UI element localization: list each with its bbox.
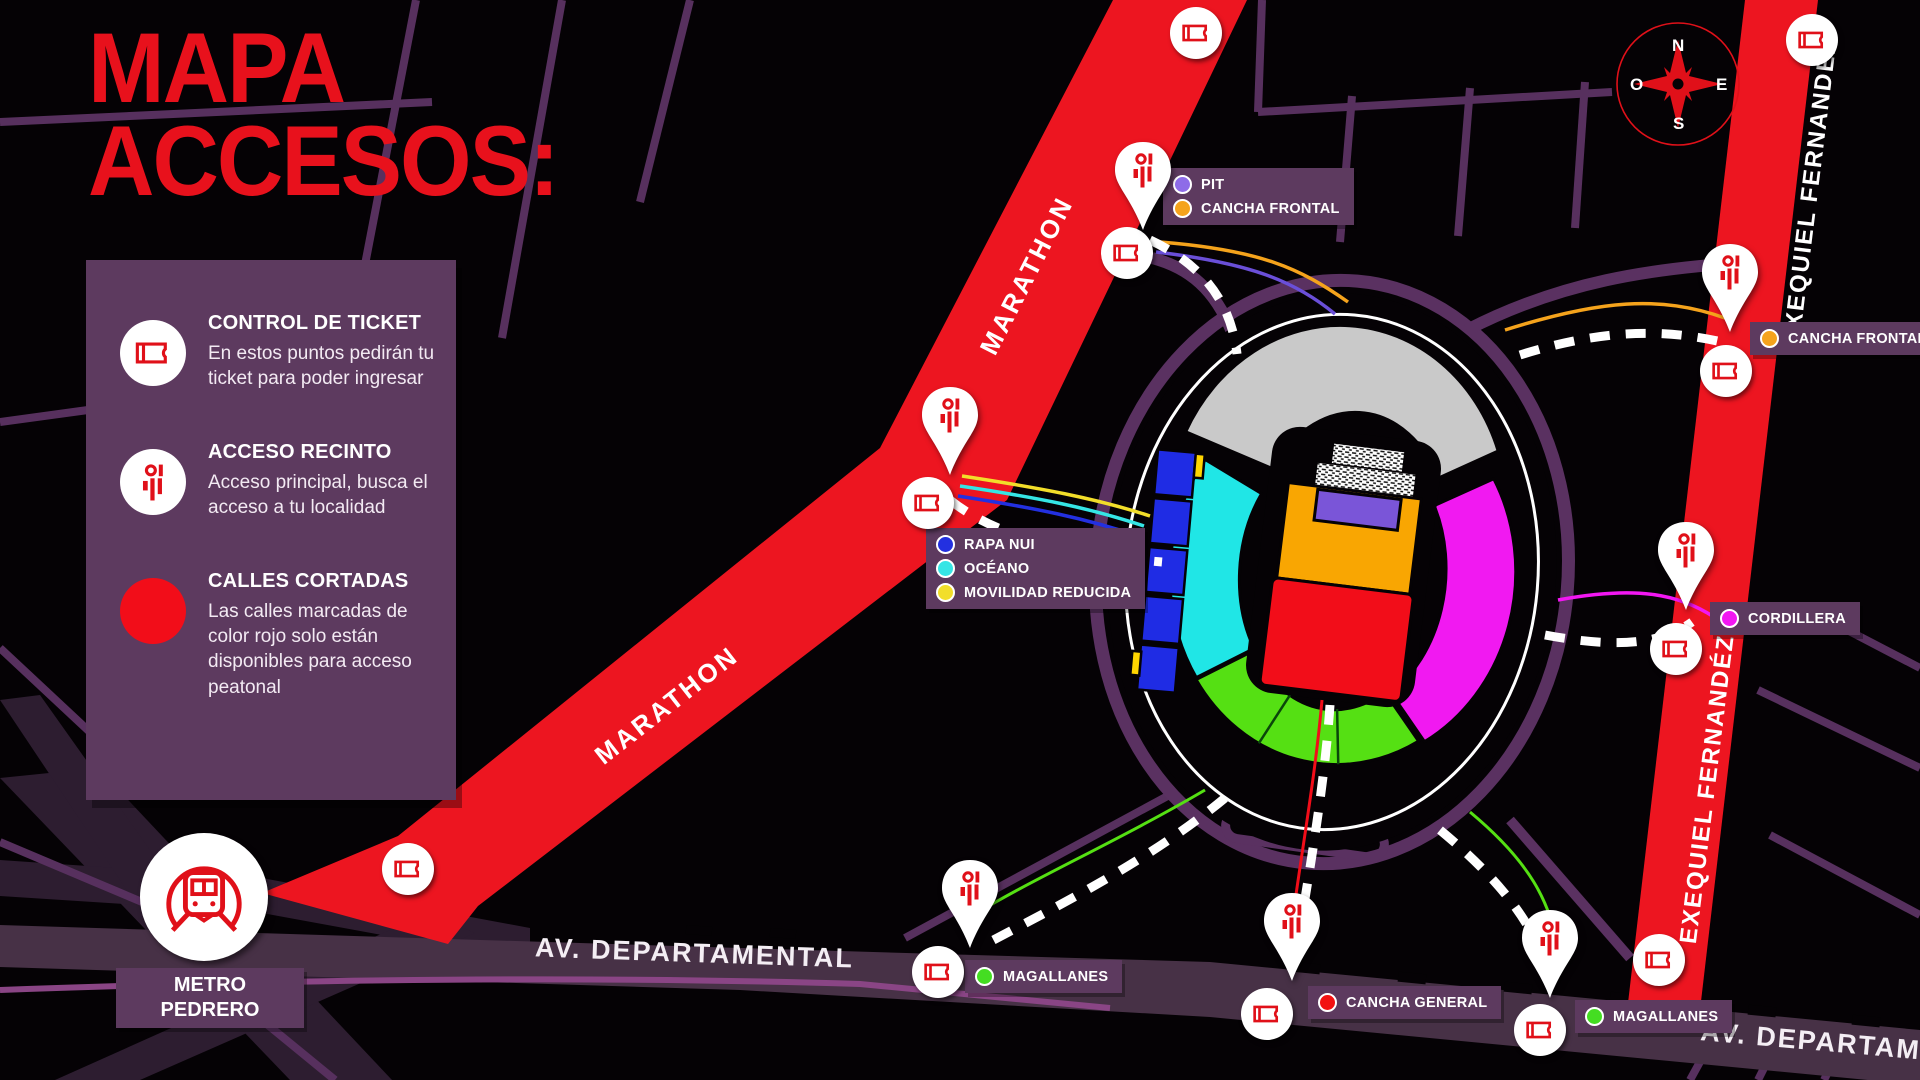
legend-item-control-ticket: CONTROL DE TICKET En estos puntos pedirá… [120, 312, 456, 391]
magallanes-dot [1585, 1007, 1604, 1026]
cordillera-dot [1720, 609, 1739, 628]
cancha-frontal-dot [1760, 329, 1779, 348]
legend-body: Las calles marcadas de color rojo solo e… [208, 599, 440, 699]
access-pin-marker [918, 385, 982, 477]
access-map: MAPA ACCESOS: CONTROL DE TICKET En estos… [0, 0, 1920, 1080]
zone-cancha-general [1260, 577, 1414, 702]
ticket-control-marker [1633, 934, 1685, 986]
access-pin-marker [1111, 140, 1175, 232]
ticket-control-marker [1700, 345, 1752, 397]
compass-n: N [1672, 36, 1684, 56]
closed-street-icon [120, 578, 186, 644]
access-pin-marker [1260, 891, 1324, 983]
ticket-icon [120, 320, 186, 386]
oceano-dot [936, 559, 955, 578]
movilidad-dot [936, 583, 955, 602]
ticket-control-marker [912, 946, 964, 998]
legend-item-calles-cortadas: CALLES CORTADAS Las calles marcadas de c… [120, 570, 456, 699]
zone-label-magallanes-right: MAGALLANES [1575, 1000, 1732, 1033]
legend-title: CALLES CORTADAS [208, 570, 440, 593]
access-pin-marker [1518, 908, 1582, 1000]
zone-label-cancha-frontal: CANCHA FRONTAL [1750, 322, 1920, 355]
field [1243, 424, 1444, 711]
pit-dot [1173, 175, 1192, 194]
ticket-control-marker [1514, 1004, 1566, 1056]
legend-title: ACCESO RECINTO [208, 441, 440, 464]
cancha-frontal-dot [1173, 199, 1192, 218]
ticket-control-marker [1101, 227, 1153, 279]
zone-label-cancha-general: CANCHA GENERAL [1308, 986, 1501, 1019]
compass-s: S [1673, 114, 1684, 134]
access-pin-marker [938, 858, 1002, 950]
zone-movilidad [1194, 454, 1205, 479]
zone-label-magallanes-left: MAGALLANES [965, 960, 1122, 993]
legend-title: CONTROL DE TICKET [208, 312, 440, 335]
access-pin-marker [1698, 242, 1762, 334]
zone-label-cordillera: CORDILLERA [1710, 602, 1860, 635]
legend-body: En estos puntos pedirán tu ticket para p… [208, 341, 440, 391]
ticket-control-marker [1650, 623, 1702, 675]
legend-body: Acceso principal, busca el acceso a tu l… [208, 470, 440, 520]
page-title: MAPA ACCESOS: [88, 22, 558, 209]
ticket-control-marker [902, 477, 954, 529]
zone-label-pit-frontal: PIT CANCHA FRONTAL [1163, 168, 1354, 225]
access-pin-marker [1654, 520, 1718, 612]
zone-label-rapa-oceano-movilidad: RAPA NUI OCÉANO MOVILIDAD REDUCIDA [926, 528, 1145, 609]
compass-e: E [1716, 75, 1727, 95]
turnstile-icon [120, 449, 186, 515]
ticket-control-marker [382, 843, 434, 895]
ticket-control-marker [1241, 988, 1293, 1040]
compass-rose: N S E O [1608, 14, 1748, 154]
compass-o: O [1630, 75, 1643, 95]
cancha-general-dot [1318, 993, 1337, 1012]
metro-icon [160, 853, 248, 941]
ticket-control-marker [1786, 14, 1838, 66]
metro-station-label: METRO PEDRERO [116, 968, 304, 1028]
legend-panel: CONTROL DE TICKET En estos puntos pedirá… [86, 260, 456, 800]
metro-station-marker [140, 833, 268, 961]
zone-movilidad [1130, 651, 1141, 676]
rapa-nui-dot [936, 535, 955, 554]
magallanes-dot [975, 967, 994, 986]
legend-item-acceso-recinto: ACCESO RECINTO Acceso principal, busca e… [120, 441, 456, 520]
ticket-control-marker [1170, 7, 1222, 59]
